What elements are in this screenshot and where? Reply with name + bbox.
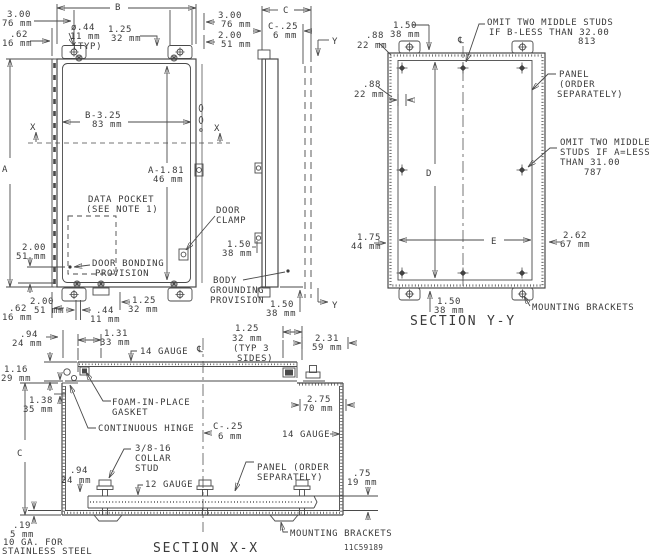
dim-2.75-mm: 70 mm: [303, 404, 333, 414]
dim-.94-b-mm: 24 mm: [61, 476, 91, 486]
collar-stud-label2: COLLAR: [135, 454, 171, 464]
bolt-icon: [175, 290, 184, 299]
dim-.94-t-mm: 24 mm: [12, 339, 42, 349]
panel-stud-icon: [517, 165, 528, 176]
dim-.94-b: .94: [70, 466, 88, 476]
dim-dia-.44-mm: 11 mm: [70, 32, 100, 42]
dim-3.00-tr-mm: 76 mm: [221, 20, 251, 30]
dim-c-xx: C: [17, 449, 23, 459]
collar-stud-label3: STUD: [135, 464, 159, 474]
xx-gasket-right: [285, 370, 293, 376]
dim-e: E: [491, 237, 497, 247]
omit-studs-b-mm: 813: [578, 37, 596, 47]
door-clamp-bolt-icon: [197, 168, 202, 173]
dim-c: C: [283, 6, 289, 16]
foam-gasket-label2: GASKET: [112, 408, 148, 418]
omit-studs-b-note: OMIT TWO MIDDLE STUDS: [487, 18, 613, 28]
dim-1.25-typ: 1.25: [235, 324, 259, 334]
bolt-icon: [175, 47, 184, 56]
dim-.62-b-mm: 16 mm: [2, 313, 32, 323]
omit-studs-a-note: OMIT TWO MIDDLE: [560, 138, 649, 148]
dim-c-.25-xx: C-.25: [213, 422, 243, 432]
stainless-note2: STAINLESS STEEL: [2, 547, 92, 556]
dim-.62-tl-mm: 16 mm: [2, 39, 32, 49]
bonding-hardware: [93, 288, 109, 295]
dim-d: D: [426, 169, 432, 179]
side-view-labels: C C-.25 6 mm Y Y 1.50 38 mm BODY GROUNDI…: [210, 6, 338, 319]
dim-3.00-tl-mm: 76 mm: [2, 19, 32, 29]
collar-stud-assembly: [294, 480, 310, 515]
dim-.88-1-mm: 22 mm: [357, 41, 387, 51]
panel-label-xx: PANEL (ORDER: [257, 463, 329, 473]
bolt-icon: [405, 289, 414, 298]
stud-bolt-icon: [74, 281, 80, 287]
dim-1.50-t-mm: 38 mm: [390, 30, 420, 40]
panel-stud-icon: [517, 268, 528, 279]
section-xx-labels: C .94 24 mm 1.31 33 mm 14 GAUGE ℄ 1.25 3…: [1, 324, 392, 556]
dim-2.31-mm: 59 mm: [312, 343, 342, 353]
dim-b-3.25-mm: 83 mm: [92, 120, 122, 130]
body-grounding-label3: PROVISION: [210, 296, 264, 306]
dim-1.16-mm: 29 mm: [1, 374, 31, 384]
mounting-bracket-foot: [270, 515, 298, 521]
section-yy-geometry: [388, 41, 545, 300]
section-yy-title: SECTION Y-Y: [410, 314, 516, 329]
omit-studs-a-mm: 787: [584, 168, 602, 178]
dim-.88-2-mm: 22 mm: [354, 90, 384, 100]
panel-note2: (ORDER: [559, 80, 595, 90]
xx-panel-right-end: [314, 496, 317, 508]
xx-cover-stud-nut: [310, 366, 317, 373]
dim-1.25-t-mm: 32 mm: [111, 34, 141, 44]
side-view: C C-.25 6 mm Y Y 1.50 38 mm BODY GROUNDI…: [210, 6, 338, 319]
dim-.88-1: .88: [366, 31, 384, 41]
dim-1.25-typ-note: (TYP 3: [233, 344, 269, 354]
enclosure-drawing: B A X X 3.00 76 mm .62 16 mm ø.44 11 mm …: [0, 0, 649, 556]
gauge-14-door-label: 14 GAUGE: [140, 347, 188, 357]
door-clamp-low: [179, 249, 188, 260]
dim-1.31-mm: 33 mm: [100, 338, 130, 348]
gauge-12-label: 12 GAUGE: [145, 480, 193, 490]
continuous-hinge-label: CONTINUOUS HINGE: [98, 424, 194, 434]
dim-b: B: [115, 3, 121, 13]
section-xx-title: SECTION X-X: [153, 541, 259, 556]
dim-1.25-typ-note2: SIDES): [237, 354, 273, 364]
collar-stud-assembly: [97, 480, 113, 515]
section-x-label-right: X: [214, 124, 220, 134]
collar-stud-assembly: [197, 480, 213, 515]
door-bonding-label: DOOR BONDING: [92, 259, 164, 269]
hinge-knuckle-icon: [71, 375, 76, 380]
foam-gasket-label: FOAM-IN-PLACE: [112, 398, 190, 408]
stud-bolt-icon: [76, 55, 82, 61]
side-clamp-bolt-icon: [256, 166, 260, 170]
panel-stud-icon: [517, 63, 528, 74]
section-yy: ℄ 1.50 38 mm .88 22 mm .88 22 mm OMIT TW…: [351, 18, 649, 329]
door-clamp-bolt-icon: [181, 252, 186, 257]
side-tab: [258, 50, 270, 59]
dim-.44-b-mm: 11 mm: [90, 315, 120, 325]
omit-studs-a-note2: STUDS IF A=LESS: [560, 148, 649, 158]
dim-.88-2: .88: [363, 80, 381, 90]
section-xx: C .94 24 mm 1.31 33 mm 14 GAUGE ℄ 1.25 3…: [1, 324, 392, 556]
stud-bolt-icon: [171, 55, 177, 61]
dim-1.25-typ-mm: 32 mm: [232, 334, 262, 344]
panel-note3: SEPARATELY): [557, 90, 623, 100]
mounting-bracket-foot: [94, 515, 122, 521]
clamp-hole-icon: [200, 129, 203, 132]
stud-bolt-icon: [171, 281, 177, 287]
side-view-geometry: [255, 50, 311, 298]
dim-1.25-b-mm: 32 mm: [128, 305, 158, 315]
mounting-brackets-label-xx: MOUNTING BRACKETS: [290, 529, 392, 539]
dim-dia-.44-typ: (TYP): [72, 42, 102, 52]
door-clamp-label: DOOR: [216, 206, 240, 216]
dim-1.50-clamp-mm: 38 mm: [222, 249, 252, 259]
section-x-label-left: X: [30, 123, 36, 133]
panel-note: PANEL: [559, 70, 589, 80]
dim-2.00-l-mm: 51 mm: [16, 252, 46, 262]
centerline-symbol-xx: ℄: [196, 345, 203, 355]
dim-2.00-tr-mm: 51 mm: [221, 40, 251, 50]
drawing-sheet: B A X X 3.00 76 mm .62 16 mm ø.44 11 mm …: [0, 0, 649, 556]
bolt-icon: [518, 289, 527, 298]
section-yy-labels: ℄ 1.50 38 mm .88 22 mm .88 22 mm OMIT TW…: [351, 18, 649, 329]
dim-a: A: [2, 165, 8, 175]
section-y-label-bottom: Y: [332, 301, 338, 311]
section-y-label-top: Y: [332, 37, 338, 47]
door-clamp-label2: CLAMP: [216, 216, 246, 226]
hinge-knuckle-icon: [64, 369, 70, 375]
collar-stud-label: 3/8-16: [135, 444, 171, 454]
data-pocket-label: DATA POCKET: [88, 195, 154, 205]
gauge-14-wall-label: 14 GAUGE: [282, 430, 330, 440]
side-body: [262, 59, 278, 287]
door-bonding-label2: PROVISION: [95, 269, 149, 279]
data-pocket-note: (SEE NOTE 1): [86, 205, 158, 215]
mounting-brackets-label-yy: MOUNTING BRACKETS: [532, 303, 634, 313]
dim-2.00-b-mm: 51 mm: [34, 306, 64, 316]
bolt-icon: [405, 42, 414, 51]
dim-1.38-mm: 35 mm: [23, 405, 53, 415]
side-clamp-bolt-icon: [256, 236, 260, 240]
dim-c-.25-mm: 6 mm: [273, 31, 297, 41]
bolt-icon: [518, 42, 527, 51]
side-view-dimension-lines: [243, 6, 329, 312]
part-number: 11C59189: [344, 543, 383, 552]
stud-bolt-icon: [98, 281, 104, 287]
omit-studs-a-note3: THAN 31.00: [560, 158, 620, 168]
bonding-point-icon: [68, 265, 71, 268]
bolt-icon: [69, 290, 78, 299]
dim-c-.25-xx-mm: 6 mm: [218, 432, 242, 442]
dim-1.50-b-mm: 38 mm: [266, 309, 296, 319]
panel-label-xx2: SEPARATELY): [257, 473, 323, 483]
dim-.75-mm: 19 mm: [347, 478, 377, 488]
dim-1.75-mm: 44 mm: [351, 242, 381, 252]
body-grounding-label2: GROUNDING: [210, 286, 264, 296]
dim-a-1.81-mm: 46 mm: [153, 175, 183, 185]
centerline-symbol: ℄: [457, 36, 464, 46]
yy-panel-outline: [398, 61, 532, 281]
body-grounding-label: BODY: [213, 276, 237, 286]
dim-2.62-mm: 67 mm: [560, 240, 590, 250]
grounding-point-icon: [286, 269, 289, 272]
